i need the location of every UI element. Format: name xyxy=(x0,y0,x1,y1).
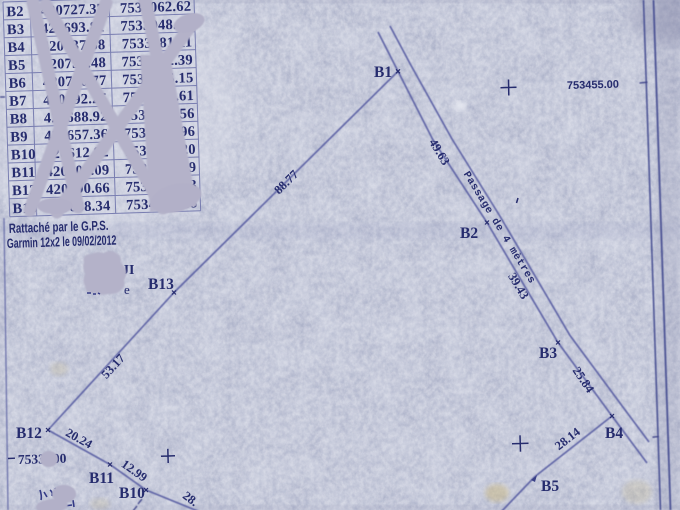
svg-text:e: e xyxy=(124,282,130,297)
svg-text:7534062.62: 7534062.62 xyxy=(120,0,192,17)
svg-text:B10: B10 xyxy=(11,147,36,164)
svg-text:B4: B4 xyxy=(7,40,25,57)
svg-text:753455.00: 753455.00 xyxy=(567,79,619,92)
svg-text:B2: B2 xyxy=(6,4,24,21)
svg-text:B5: B5 xyxy=(541,478,559,495)
svg-text:B3: B3 xyxy=(539,345,557,362)
svg-text:B11: B11 xyxy=(89,470,114,487)
svg-text:B11: B11 xyxy=(11,165,36,182)
svg-text:B7: B7 xyxy=(9,93,27,110)
svg-text:B13: B13 xyxy=(148,276,174,293)
svg-text:B4: B4 xyxy=(605,425,623,442)
svg-text:B2: B2 xyxy=(460,225,478,242)
svg-text:B1: B1 xyxy=(374,64,392,81)
svg-text:B6: B6 xyxy=(8,75,26,92)
svg-text:B10: B10 xyxy=(119,485,145,502)
svg-text:B12: B12 xyxy=(16,425,42,442)
svg-text:B3: B3 xyxy=(7,22,25,39)
svg-text:B5: B5 xyxy=(8,58,26,75)
svg-text:B8: B8 xyxy=(9,111,27,128)
svg-text:B9: B9 xyxy=(10,129,28,146)
